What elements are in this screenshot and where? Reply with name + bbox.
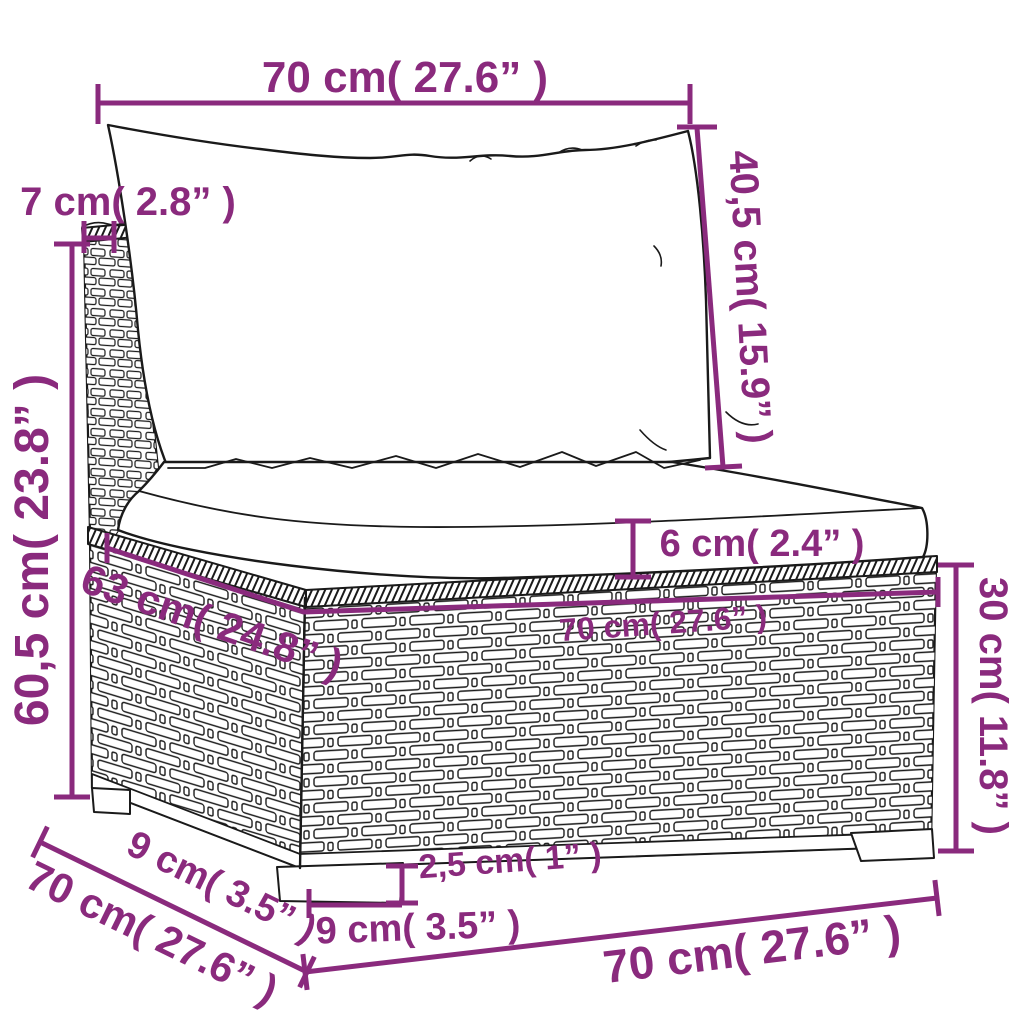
sofa-line-art — [82, 125, 937, 903]
dim-top-width: 70 cm( 27.6” ) — [98, 53, 690, 124]
dim-seat-cushion-thickness-label: 6 cm( 2.4” ) — [660, 523, 865, 565]
dim-leg-inset-front-label: 9 cm( 3.5” ) — [315, 903, 521, 952]
dim-base-height: 30 cm( 11.8” ) — [938, 565, 1015, 851]
dim-top-width-label: 70 cm( 27.6” ) — [262, 53, 548, 102]
leg-front-left — [277, 863, 403, 903]
dim-base-height-label: 30 cm( 11.8” ) — [971, 577, 1015, 835]
dim-total-height-label: 60,5 cm( 23.8” ) — [6, 374, 59, 726]
leg-front-right — [851, 829, 934, 861]
leg-side-left — [92, 788, 130, 814]
diagram-canvas: 70 cm( 27.6” ) 7 cm( 2.8” ) 40,5 cm( 15.… — [0, 0, 1024, 1024]
dim-total-height: 60,5 cm( 23.8” ) — [6, 244, 90, 797]
dim-back-post-depth-label: 7 cm( 2.8” ) — [20, 180, 236, 224]
back-cushion — [108, 125, 710, 470]
product-dimension-diagram: 70 cm( 27.6” ) 7 cm( 2.8” ) 40,5 cm( 15.… — [0, 0, 1024, 1024]
dim-back-cushion-height-label: 40,5 cm( 15.9” ) — [720, 149, 779, 444]
